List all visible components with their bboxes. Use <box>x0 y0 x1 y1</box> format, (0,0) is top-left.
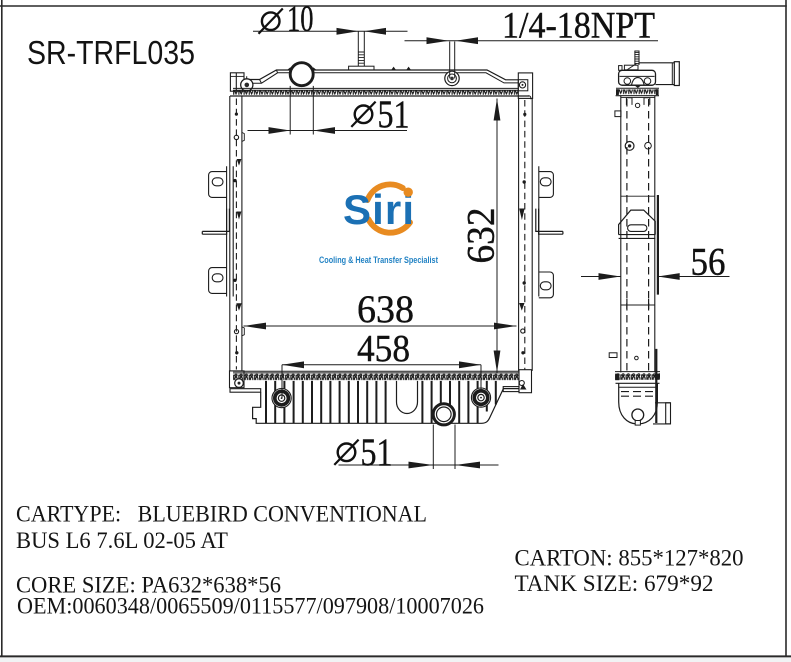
svg-text:SR-TRFL035: SR-TRFL035 <box>27 34 195 71</box>
svg-text:CARTYPE: BLUEBIRD CONVENTION: CARTYPE: BLUEBIRD CONVENTIONAL <box>16 502 427 527</box>
svg-text:OEM:0060348/0065509/0115577/09: OEM:0060348/0065509/0115577/097908/10007… <box>17 594 484 619</box>
svg-text:1/4-18NPT: 1/4-18NPT <box>502 5 655 46</box>
svg-text:Cooling & Heat Transfer Specia: Cooling & Heat Transfer Specialist <box>319 255 439 266</box>
svg-text:638: 638 <box>357 287 414 331</box>
svg-text:10: 10 <box>287 0 314 40</box>
svg-text:56: 56 <box>691 241 726 284</box>
svg-text:CARTON: 855*127*820: CARTON: 855*127*820 <box>515 546 744 571</box>
svg-text:51: 51 <box>361 430 393 474</box>
svg-text:458: 458 <box>357 328 410 370</box>
svg-text:632: 632 <box>459 208 503 264</box>
svg-text:BUS L6 7.6L 02-05 AT: BUS L6 7.6L 02-05 AT <box>16 528 228 553</box>
svg-text:51: 51 <box>378 92 410 136</box>
svg-text:TANK SIZE: 679*92: TANK SIZE: 679*92 <box>515 571 714 596</box>
